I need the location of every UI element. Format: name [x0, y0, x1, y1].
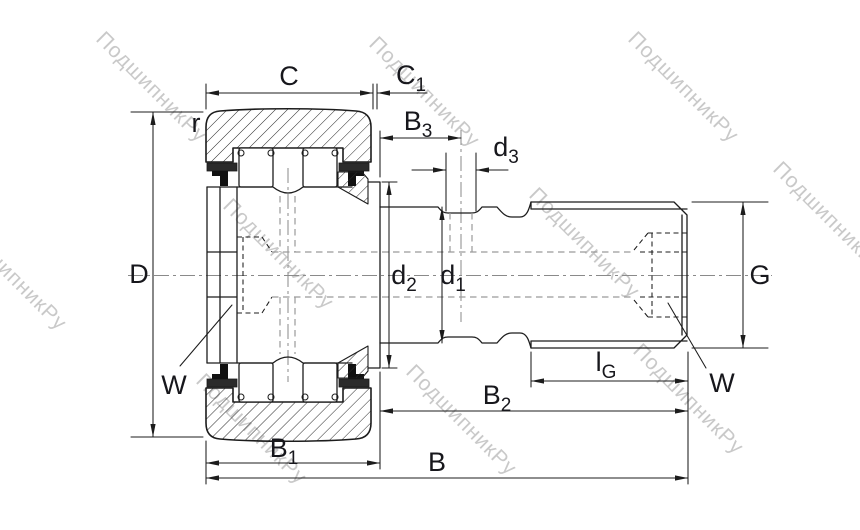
- dim-label-W-right: W: [709, 368, 735, 398]
- watermark-text: ПодшипникРу: [401, 360, 521, 480]
- seal-washer-strip: [339, 379, 369, 387]
- dim-label-lG: lG: [596, 347, 617, 383]
- seal-washer-strip: [207, 163, 237, 171]
- thrust-washer-section: [338, 172, 368, 204]
- watermark-text: ПодшипникРу: [623, 27, 743, 147]
- seal-washer-strip: [207, 379, 237, 387]
- seal-lip: [212, 171, 228, 186]
- thrust-washer-section: [338, 346, 368, 378]
- needle-rollers-bottom-row: [238, 363, 338, 402]
- dim-label-G: G: [749, 260, 770, 290]
- technical-drawing-page: ПодшипникРу ПодшипникРу ПодшипникРу Подш…: [0, 0, 860, 530]
- dim-label-B: B: [428, 447, 446, 477]
- bearing-drawing: ПодшипникРу ПодшипникРу ПодшипникРу Подш…: [0, 0, 860, 530]
- watermark-text: ПодшипникРу: [768, 157, 860, 277]
- dim-label-d1: d1: [440, 260, 466, 296]
- dim-label-C: C: [279, 61, 299, 91]
- seal-lip: [212, 364, 228, 379]
- dim-label-D: D: [129, 259, 149, 289]
- dim-label-d3: d3: [493, 132, 519, 168]
- seal-washer-strip: [339, 163, 369, 171]
- watermark-text: ПодшипникРу: [0, 215, 71, 335]
- dim-C: C: [206, 61, 373, 109]
- outer-ring-top-section: [206, 109, 371, 162]
- watermark-text: ПодшипникРу: [524, 183, 644, 303]
- outer-ring-bottom-section: [206, 388, 371, 441]
- label-r: r: [192, 108, 201, 138]
- dim-label-W-left: W: [161, 370, 187, 400]
- dim-label-d2: d2: [391, 260, 417, 296]
- dim-d2: d2: [382, 182, 417, 368]
- dim-d1: d1: [439, 207, 465, 343]
- dim-label-r: r: [192, 108, 201, 138]
